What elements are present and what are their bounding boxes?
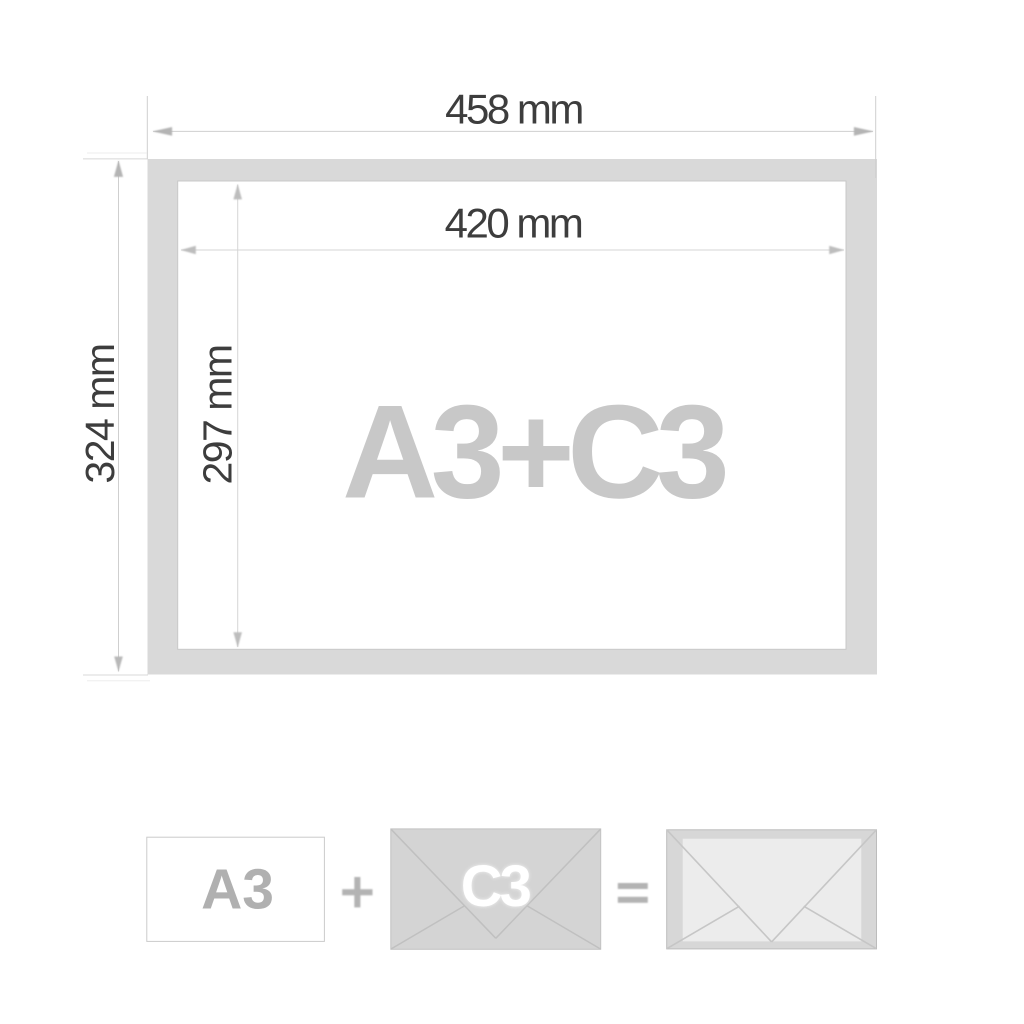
- svg-text:420 mm: 420 mm: [445, 200, 582, 247]
- svg-text:324 mm: 324 mm: [77, 344, 123, 483]
- svg-text:458 mm: 458 mm: [445, 86, 582, 133]
- svg-text:297 mm: 297 mm: [194, 345, 240, 484]
- svg-text:A3: A3: [201, 858, 274, 922]
- svg-text:A3+C3: A3+C3: [342, 379, 726, 527]
- svg-text:C3: C3: [461, 854, 531, 919]
